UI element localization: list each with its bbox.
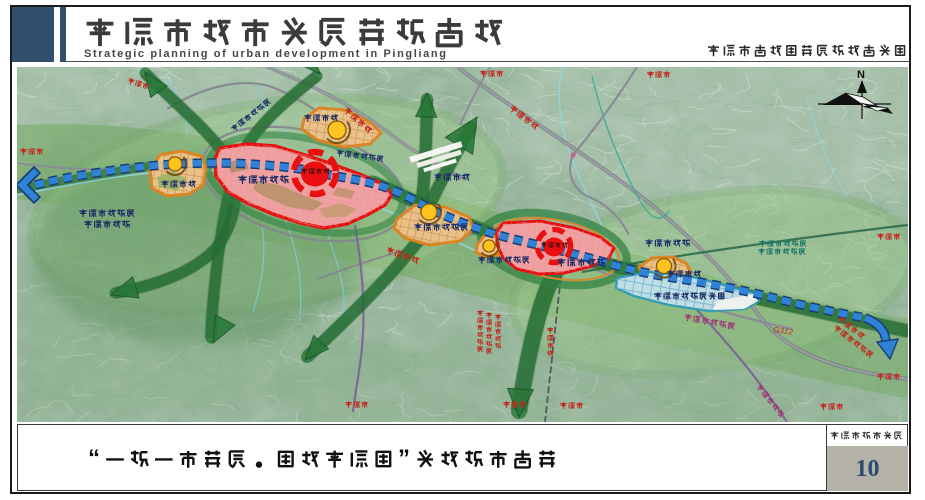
svg-text:“: “ [88,446,100,472]
svg-text:”: ” [398,446,410,472]
svg-text:N: N [857,69,865,81]
